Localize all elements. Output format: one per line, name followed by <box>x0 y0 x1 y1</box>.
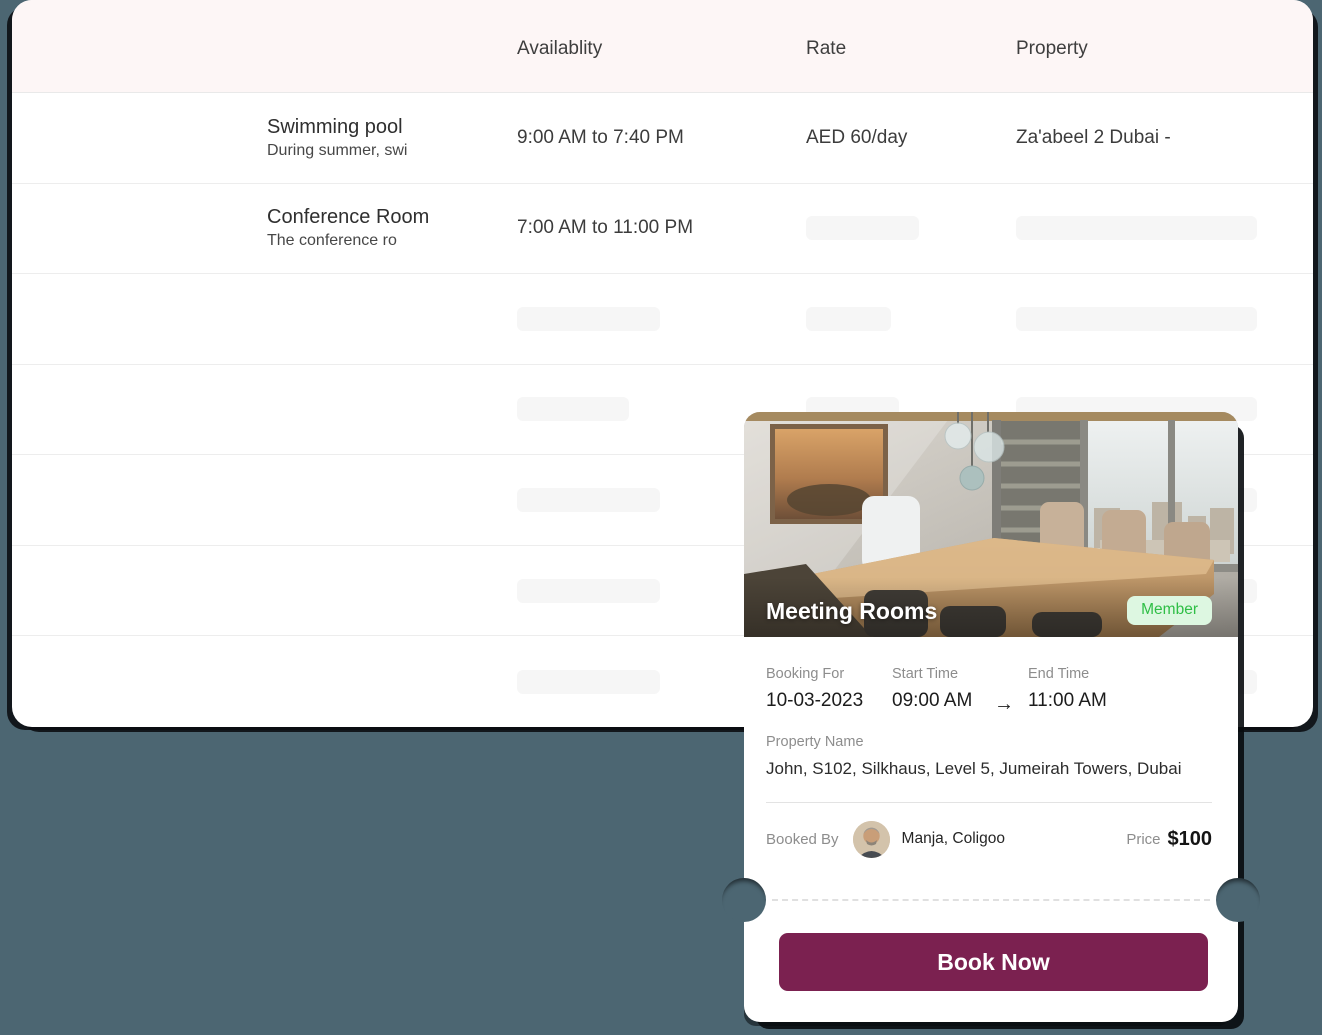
property-name-field: Property Name John, S102, Silkhaus, Leve… <box>766 734 1216 779</box>
amenity-name: Conference Room <box>267 206 429 229</box>
availability-skeleton <box>517 670 660 694</box>
amenity-description: During summer, swi <box>267 142 407 160</box>
availability-value: 9:00 AM to 7:40 PM <box>517 127 684 149</box>
availability-skeleton <box>517 307 660 331</box>
start-time-label: Start Time <box>892 666 988 682</box>
book-now-button[interactable]: Book Now <box>779 933 1208 991</box>
booked-by-value: Manja, Coligoo <box>902 830 1005 848</box>
arrow-right-icon: → <box>994 693 1014 716</box>
ticket-notch-left <box>722 878 766 922</box>
rate-skeleton <box>806 216 919 240</box>
amenity-name-cell: Conference Room The conference ro <box>267 206 429 250</box>
amenity-description: The conference ro <box>267 232 429 250</box>
booking-for-label: Booking For <box>766 666 892 682</box>
amenity-name-cell: Swimming pool During summer, swi <box>267 116 407 160</box>
price-value: $100 <box>1168 828 1213 851</box>
table-row-swimming-pool[interactable]: Swimming pool During summer, swi 9:00 AM… <box>12 93 1313 184</box>
divider <box>766 802 1212 803</box>
start-time-value: 09:00 AM <box>892 690 988 712</box>
table-row-loading <box>12 274 1313 365</box>
column-header-availability: Availablity <box>517 38 602 60</box>
table-header: Availablity Rate Property <box>12 0 1313 93</box>
end-time-field: End Time 11:00 AM <box>1028 666 1107 712</box>
ticket-notch-right <box>1216 878 1260 922</box>
booking-for-value: 10-03-2023 <box>766 690 892 712</box>
availability-skeleton <box>517 397 629 421</box>
end-time-value: 11:00 AM <box>1028 690 1107 712</box>
availability-value: 7:00 AM to 11:00 PM <box>517 217 693 239</box>
end-time-label: End Time <box>1028 666 1107 682</box>
booking-card-title: Meeting Rooms <box>766 598 937 625</box>
rate-value: AED 60/day <box>806 127 907 149</box>
booking-fields: Booking For 10-03-2023 Start Time 09:00 … <box>766 666 1216 716</box>
booked-by-row: Booked By Manja, Coligoo Price $100 <box>766 818 1212 860</box>
availability-skeleton <box>517 579 660 603</box>
table-row-conference-room[interactable]: Conference Room The conference ro 7:00 A… <box>12 184 1313 275</box>
column-header-rate: Rate <box>806 38 846 60</box>
amenity-name: Swimming pool <box>267 116 407 139</box>
meeting-room-photo: Meeting Rooms Member <box>744 412 1238 637</box>
rate-skeleton <box>806 307 891 331</box>
member-badge: Member <box>1127 596 1212 625</box>
booked-by-label: Booked By <box>766 831 839 848</box>
dashed-line <box>772 899 1210 901</box>
page-background: Availablity Rate Property Swimming pool … <box>0 0 1322 1035</box>
property-skeleton <box>1016 216 1257 240</box>
property-skeleton <box>1016 307 1257 331</box>
property-name-label: Property Name <box>766 734 1216 750</box>
avatar <box>853 821 890 858</box>
price-label: Price <box>1126 831 1160 848</box>
booking-for-field: Booking For 10-03-2023 <box>766 666 892 712</box>
ticket-divider <box>744 878 1238 922</box>
property-value: Za'abeel 2 Dubai - <box>1016 127 1171 149</box>
start-time-field: Start Time 09:00 AM <box>892 666 988 712</box>
property-name-value: John, S102, Silkhaus, Level 5, Jumeirah … <box>766 759 1216 779</box>
availability-skeleton <box>517 488 660 512</box>
column-header-property: Property <box>1016 38 1088 60</box>
booking-card: Meeting Rooms Member Booking For 10-03-2… <box>744 412 1238 1022</box>
